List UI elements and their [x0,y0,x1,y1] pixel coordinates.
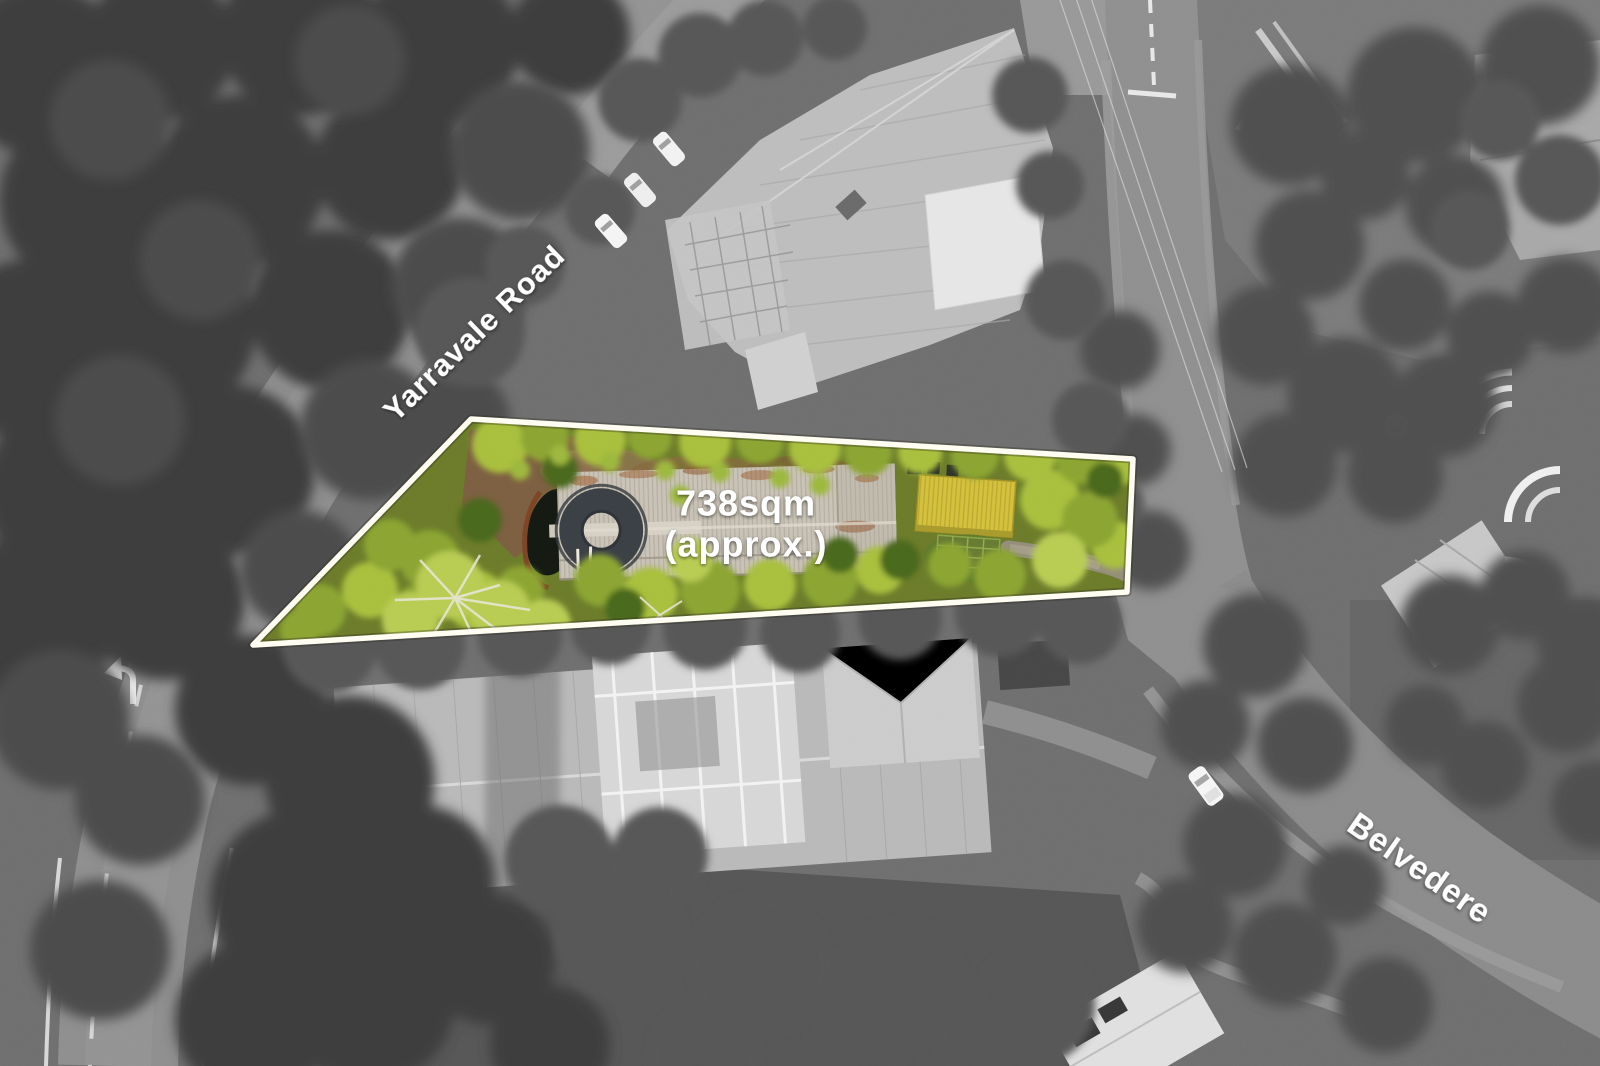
aerial-scene: Yarravale Road 738sqm (approx.) Belveder… [0,0,1600,1066]
area-label-value: 738sqm [676,483,816,524]
aerial-photo: Yarravale Road 738sqm (approx.) Belveder… [0,0,1600,1066]
area-label-qualifier: (approx.) [664,524,827,565]
